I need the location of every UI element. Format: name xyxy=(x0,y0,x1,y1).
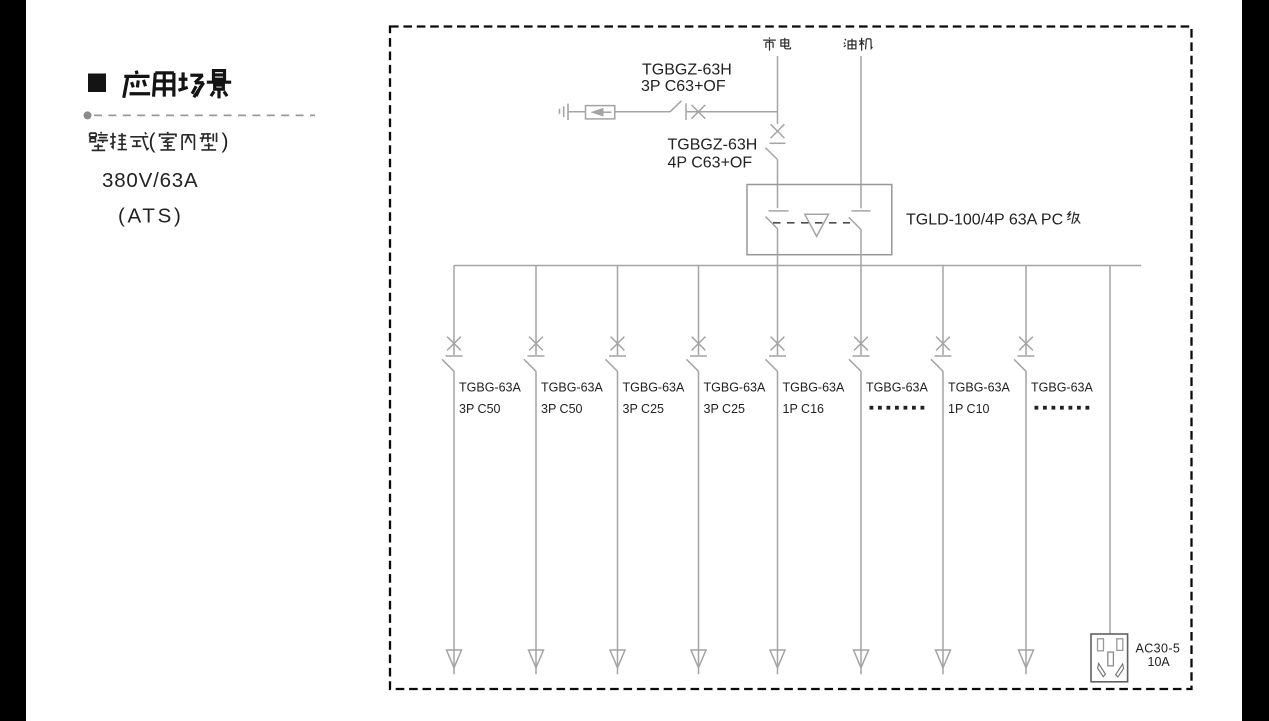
svg-text:10A: 10A xyxy=(1148,655,1171,669)
svg-text:TGBGZ-63H: TGBGZ-63H xyxy=(668,137,758,154)
svg-text:380V/63A: 380V/63A xyxy=(102,169,198,192)
svg-text:): ) xyxy=(222,130,229,153)
svg-text:3P C25: 3P C25 xyxy=(623,402,665,416)
svg-text:(ATS): (ATS) xyxy=(118,205,184,228)
svg-text:TGBG-63A: TGBG-63A xyxy=(783,381,845,395)
svg-text:3P C63+OF: 3P C63+OF xyxy=(641,78,726,95)
svg-text:1P C10: 1P C10 xyxy=(948,402,990,416)
svg-text:TGBG-63A: TGBG-63A xyxy=(541,381,603,395)
svg-text:3P C50: 3P C50 xyxy=(541,402,583,416)
svg-text:3P C50: 3P C50 xyxy=(459,402,501,416)
svg-text:TGBG-63A: TGBG-63A xyxy=(948,381,1010,395)
svg-text:TGBG-63A: TGBG-63A xyxy=(459,381,521,395)
svg-text:TGLD-100/4P 63A PC: TGLD-100/4P 63A PC xyxy=(906,212,1063,229)
svg-text:TGBG-63A: TGBG-63A xyxy=(623,381,685,395)
svg-text:TGBGZ-63H: TGBGZ-63H xyxy=(642,62,732,79)
svg-text:4P C63+OF: 4P C63+OF xyxy=(668,154,753,171)
svg-text:AC30-5: AC30-5 xyxy=(1136,642,1181,656)
svg-text:TGBG-63A: TGBG-63A xyxy=(704,381,766,395)
svg-text:1P C16: 1P C16 xyxy=(783,402,825,416)
svg-text:(: ( xyxy=(149,130,156,153)
svg-text:TGBG-63A: TGBG-63A xyxy=(866,381,928,395)
svg-text:3P C25: 3P C25 xyxy=(704,402,746,416)
svg-text:TGBG-63A: TGBG-63A xyxy=(1031,381,1093,395)
